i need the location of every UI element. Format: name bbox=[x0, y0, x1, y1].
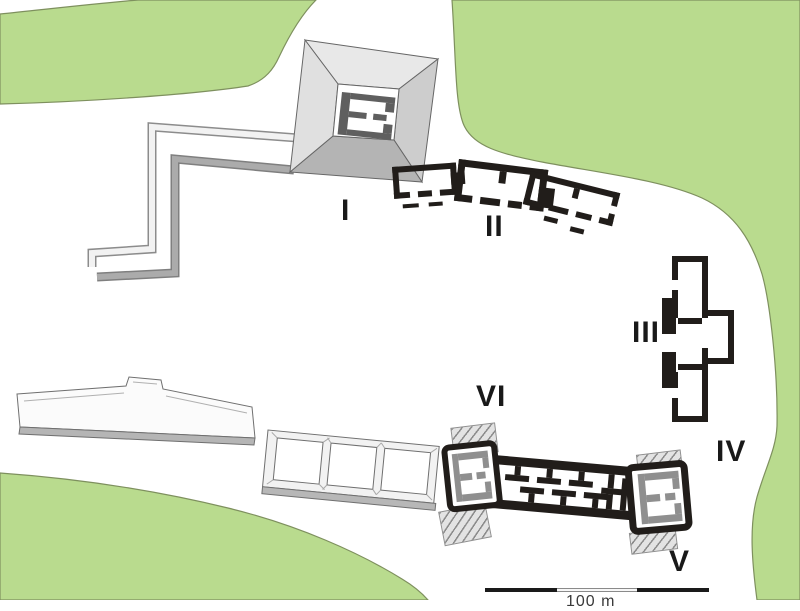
label-structure-iii: III bbox=[632, 318, 660, 348]
label-structure-iv: IV bbox=[716, 437, 746, 467]
structure-ii bbox=[392, 159, 620, 241]
scale-bar-segment bbox=[637, 588, 709, 592]
scale-bar-segment bbox=[485, 588, 557, 592]
site-map: { "map": { "type": "archaeological-site-… bbox=[0, 0, 800, 600]
excavated-structures bbox=[0, 0, 800, 600]
structure-vi bbox=[444, 443, 500, 510]
structure-iii bbox=[662, 256, 734, 422]
structure-v bbox=[628, 463, 689, 532]
label-structure-vi: VI bbox=[476, 382, 506, 412]
label-structure-v: V bbox=[669, 547, 690, 577]
scale-bar-label: 100 m bbox=[566, 593, 615, 611]
scale-bar-segment bbox=[557, 588, 637, 592]
scale-bar bbox=[485, 588, 709, 592]
label-structure-i: I bbox=[341, 196, 350, 226]
gallery-vi-v bbox=[479, 454, 641, 521]
label-structure-ii: II bbox=[485, 212, 504, 242]
